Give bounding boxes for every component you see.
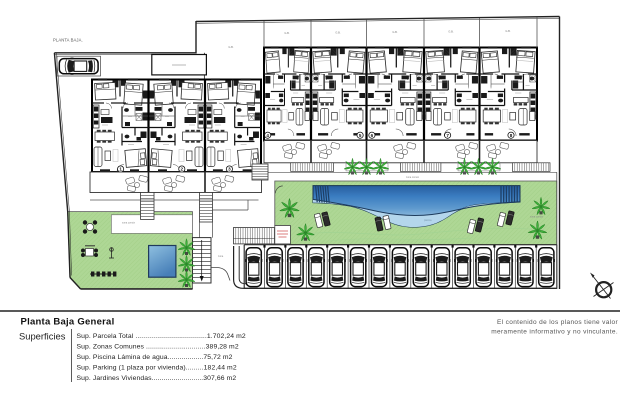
- svg-text:Sup. Zonas Comunes ...........: Sup. Zonas Comunes .....................…: [77, 343, 239, 350]
- svg-text:4: 4: [266, 133, 269, 138]
- svg-text:8: 8: [510, 133, 513, 138]
- svg-text:zona común: zona común: [406, 176, 420, 179]
- svg-text:zona común: zona común: [530, 216, 544, 219]
- svg-text:3: 3: [228, 167, 231, 172]
- svg-text:G.B.: G.B.: [335, 31, 340, 35]
- svg-text:Sup. Jardines Viviendas.......: Sup. Jardines Viviendas.................…: [77, 375, 237, 382]
- svg-text:G.B.: G.B.: [505, 29, 510, 33]
- svg-text:piscina: piscina: [424, 219, 432, 222]
- svg-text:Sup. Piscina Lámina de agua...: Sup. Piscina Lámina de agua.............…: [77, 354, 233, 361]
- svg-text:meramente informativo y no vin: meramente informativo y no vinculante.: [491, 329, 618, 336]
- svg-text:5: 5: [359, 133, 362, 138]
- svg-text:6: 6: [371, 133, 374, 138]
- svg-text:2: 2: [181, 167, 184, 172]
- svg-text:Planta Baja General: Planta Baja General: [21, 317, 115, 328]
- svg-text:1: 1: [119, 167, 122, 172]
- svg-text:G.B.: G.B.: [228, 45, 233, 49]
- svg-text:zona: zona: [218, 255, 224, 258]
- svg-text:zona común: zona común: [122, 222, 136, 225]
- svg-text:7: 7: [446, 133, 449, 138]
- svg-text:El contenido de los planos tie: El contenido de los planos tiene valor: [497, 319, 618, 326]
- svg-text:Sup. Parking (1 plaza por vivi: Sup. Parking (1 plaza por vivienda).....…: [77, 364, 237, 371]
- svg-text:Superficies: Superficies: [19, 331, 66, 342]
- svg-text:PLANTA BAJA.: PLANTA BAJA.: [53, 38, 83, 43]
- svg-text:G.B.: G.B.: [448, 29, 453, 33]
- svg-text:G.B.: G.B.: [284, 31, 289, 35]
- svg-text:Sup. Parcela Total ...........: Sup. Parcela Total .....................…: [77, 333, 246, 340]
- svg-text:G.B.: G.B.: [392, 30, 397, 34]
